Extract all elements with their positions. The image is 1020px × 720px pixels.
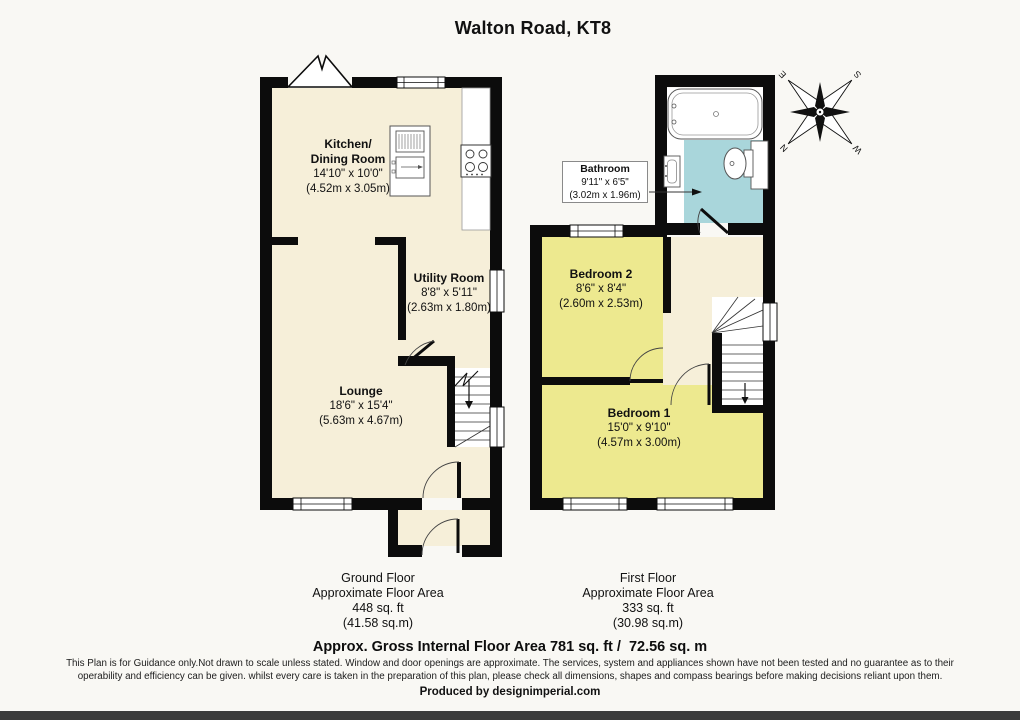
disclaimer-line-2: operability and efficiency can be given.… — [10, 670, 1010, 683]
first-floor-caption: First Floor Approximate Floor Area 333 s… — [558, 571, 738, 631]
ground-floor-area-ft: 448 sq. ft — [288, 601, 468, 616]
compass-s: S — [852, 69, 863, 80]
floorplan-page: Walton Road, KT8 — [0, 0, 1020, 720]
ground-floor-area-m: (41.58 sq.m) — [288, 616, 468, 631]
bedroom2-metric: (2.60m x 2.53m) — [536, 297, 666, 312]
kitchen-name: Kitchen/ Dining Room — [268, 137, 428, 167]
bedroom1-metric: (4.57m x 3.00m) — [574, 436, 704, 451]
bathroom-name: Bathroom — [563, 163, 647, 176]
bathtub-icon — [668, 89, 762, 139]
bedroom1-name: Bedroom 1 — [574, 406, 704, 421]
compass-n: N — [778, 142, 790, 154]
produced-by-line: Produced by designimperial.com — [0, 686, 1020, 698]
bedroom2-imperial: 8'6" x 8'4" — [536, 282, 666, 297]
ground-floor-name: Ground Floor — [288, 571, 468, 586]
utility-metric: (2.63m x 1.80m) — [390, 301, 508, 316]
room-label-bathroom: Bathroom 9'11" x 6'5" (3.02m x 1.96m) — [562, 161, 648, 203]
footer-bar — [0, 711, 1020, 720]
compass-w: W — [851, 143, 864, 156]
bathroom-metric: (3.02m x 1.96m) — [563, 189, 647, 202]
lounge-name: Lounge — [291, 384, 431, 399]
utility-imperial: 8'8" x 5'11" — [390, 286, 508, 301]
bay-window — [288, 56, 352, 87]
room-label-kitchen: Kitchen/ Dining Room 14'10" x 10'0" (4.5… — [268, 137, 428, 197]
room-label-utility: Utility Room 8'8" x 5'11" (2.63m x 1.80m… — [390, 271, 508, 316]
first-floor-area-ft: 333 sq. ft — [558, 601, 738, 616]
room-label-bedroom2: Bedroom 2 8'6" x 8'4" (2.60m x 2.53m) — [536, 267, 666, 312]
bedroom1-imperial: 15'0" x 9'10" — [574, 421, 704, 436]
compass-e: E — [777, 69, 788, 80]
utility-name: Utility Room — [390, 271, 508, 286]
sink-icon — [664, 156, 680, 187]
bedroom2-name: Bedroom 2 — [536, 267, 666, 282]
lounge-metric: (5.63m x 4.67m) — [291, 414, 431, 429]
ground-floor-area-label: Approximate Floor Area — [288, 586, 468, 601]
ground-floor-caption: Ground Floor Approximate Floor Area 448 … — [288, 571, 468, 631]
kitchen-imperial: 14'10" x 10'0" — [268, 167, 428, 182]
disclaimer-line-1: This Plan is for Guidance only.Not drawn… — [10, 657, 1010, 670]
gross-area-line: Approx. Gross Internal Floor Area 781 sq… — [0, 639, 1020, 655]
lounge-imperial: 18'6" x 15'4" — [291, 399, 431, 414]
hob-icon — [461, 145, 491, 177]
first-floor-name: First Floor — [558, 571, 738, 586]
kitchen-metric: (4.52m x 3.05m) — [268, 182, 428, 197]
first-floor-area-label: Approximate Floor Area — [558, 586, 738, 601]
room-label-lounge: Lounge 18'6" x 15'4" (5.63m x 4.67m) — [291, 384, 431, 429]
room-label-bedroom1: Bedroom 1 15'0" x 9'10" (4.57m x 3.00m) — [574, 406, 704, 451]
bathroom-imperial: 9'11" x 6'5" — [563, 176, 647, 189]
page-title: Walton Road, KT8 — [133, 18, 933, 39]
first-floor-area-m: (30.98 sq.m) — [558, 616, 738, 631]
